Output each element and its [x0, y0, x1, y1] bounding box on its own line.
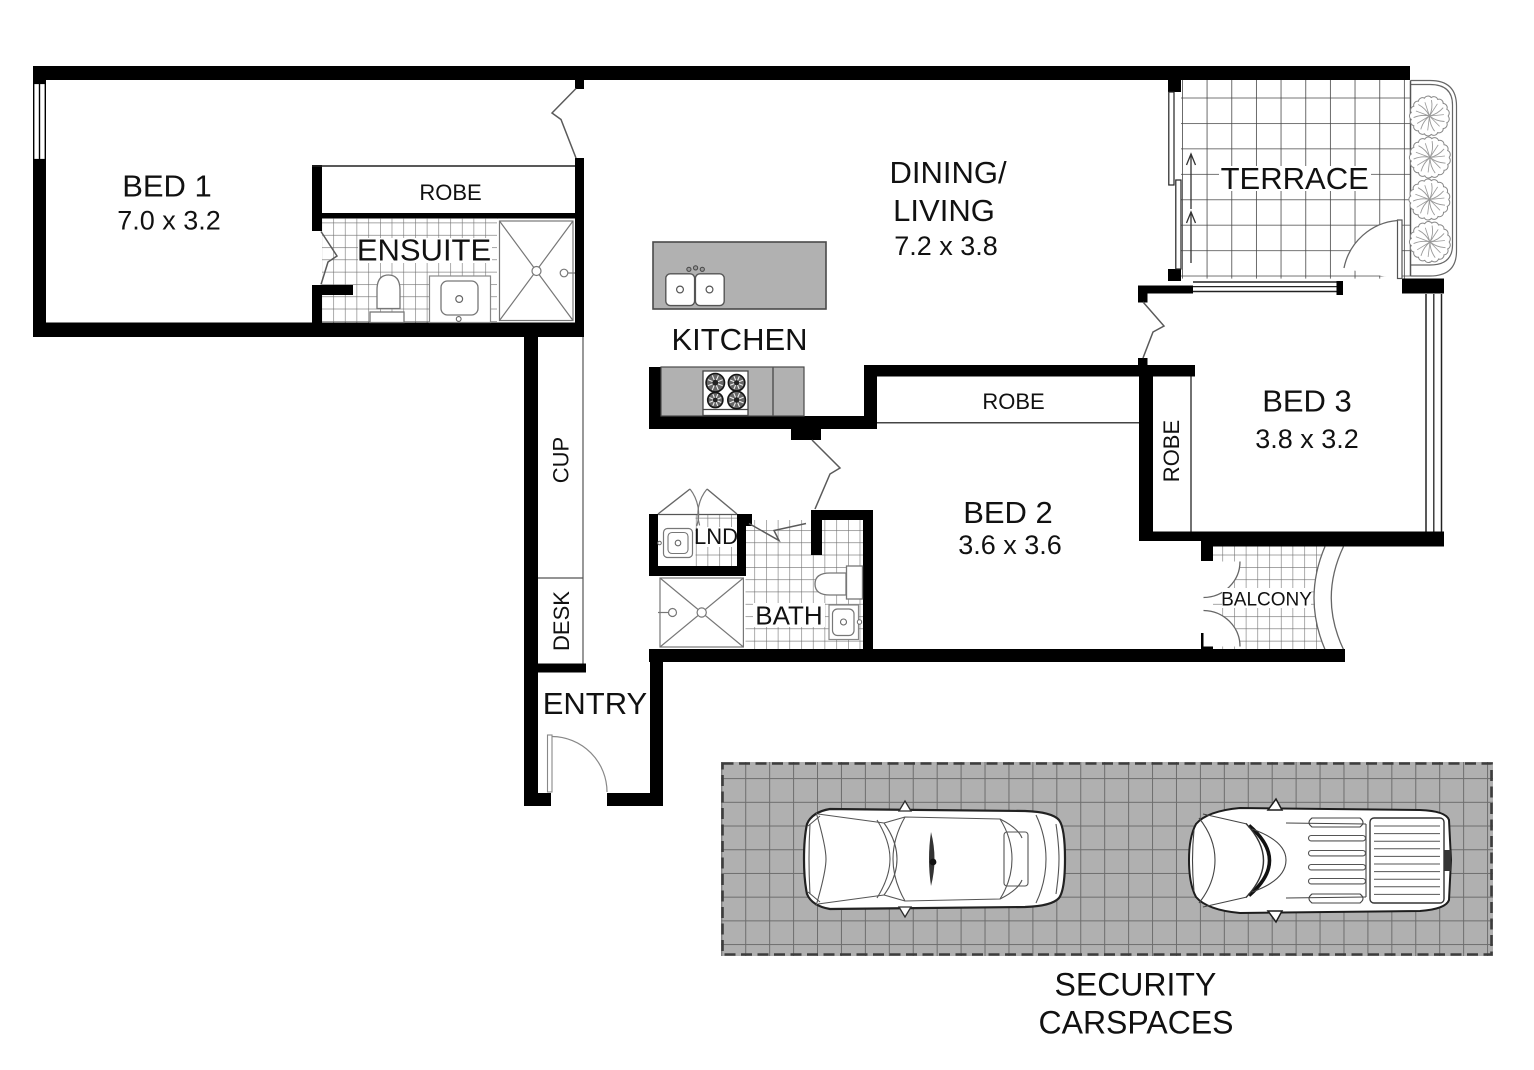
svg-text:ENSUITE: ENSUITE — [357, 233, 491, 268]
svg-text:ROBE: ROBE — [419, 180, 481, 205]
svg-text:ROBE: ROBE — [1159, 420, 1184, 482]
svg-text:7.0 x 3.2: 7.0 x 3.2 — [117, 205, 221, 235]
svg-text:SECURITY: SECURITY — [1055, 967, 1217, 1003]
svg-text:BATH: BATH — [755, 601, 822, 631]
svg-text:DESK: DESK — [549, 591, 574, 651]
svg-text:TERRACE: TERRACE — [1221, 161, 1369, 196]
svg-text:CUP: CUP — [549, 437, 574, 483]
svg-text:3.8 x 3.2: 3.8 x 3.2 — [1255, 424, 1359, 454]
svg-text:3.6 x 3.6: 3.6 x 3.6 — [958, 530, 1062, 560]
svg-text:7.2 x 3.8: 7.2 x 3.8 — [894, 231, 998, 261]
svg-text:BED 3: BED 3 — [1262, 384, 1352, 419]
svg-text:KITCHEN: KITCHEN — [671, 322, 807, 357]
svg-text:ENTRY: ENTRY — [543, 686, 648, 721]
svg-text:ROBE: ROBE — [982, 389, 1044, 414]
svg-text:LIVING: LIVING — [893, 193, 995, 228]
svg-text:CARSPACES: CARSPACES — [1038, 1004, 1233, 1040]
svg-text:BALCONY: BALCONY — [1221, 590, 1312, 611]
svg-text:LND: LND — [694, 524, 738, 549]
svg-text:DINING/: DINING/ — [889, 155, 1007, 190]
svg-text:BED 1: BED 1 — [122, 169, 212, 204]
svg-text:BED 2: BED 2 — [963, 495, 1053, 530]
